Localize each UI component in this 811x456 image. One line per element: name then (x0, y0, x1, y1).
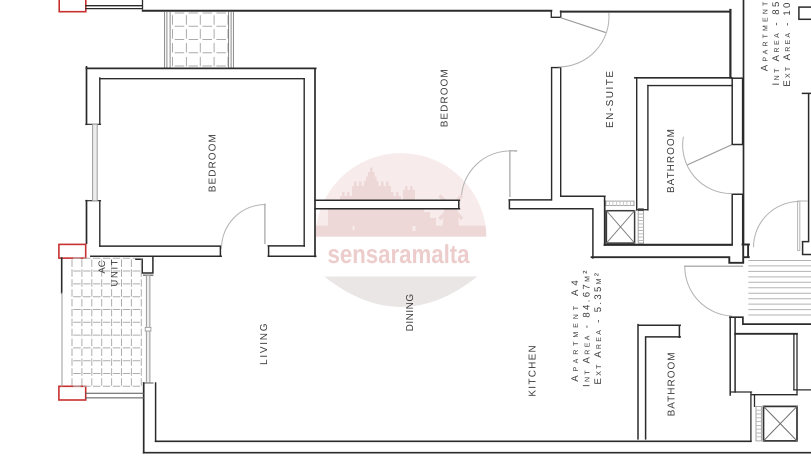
svg-text:EN-SUITE: EN-SUITE (605, 71, 616, 128)
svg-text:AC: AC (96, 260, 107, 273)
svg-text:Int Area - 85: Int Area - 85 (771, 1, 782, 85)
svg-text:Ext Area - 10: Ext Area - 10 (782, 2, 793, 86)
svg-text:UNIT: UNIT (108, 259, 119, 286)
svg-text:BEDROOM: BEDROOM (207, 134, 218, 192)
svg-text:sensaramalta: sensaramalta (328, 239, 470, 269)
svg-text:Int Area - 84.67m²: Int Area - 84.67m² (581, 270, 592, 387)
svg-text:Ext Area - 5.35m²: Ext Area - 5.35m² (593, 272, 604, 384)
svg-text:Apartment A4: Apartment A4 (570, 280, 581, 382)
svg-text:DINING: DINING (405, 294, 416, 332)
svg-text:KITCHEN: KITCHEN (528, 345, 539, 396)
svg-text:BATHROOM: BATHROOM (667, 352, 678, 416)
svg-text:Apartment: Apartment (760, 1, 771, 71)
svg-text:LIVING: LIVING (259, 323, 270, 365)
svg-text:BATHROOM: BATHROOM (666, 129, 677, 193)
svg-text:BEDROOM: BEDROOM (440, 69, 451, 127)
